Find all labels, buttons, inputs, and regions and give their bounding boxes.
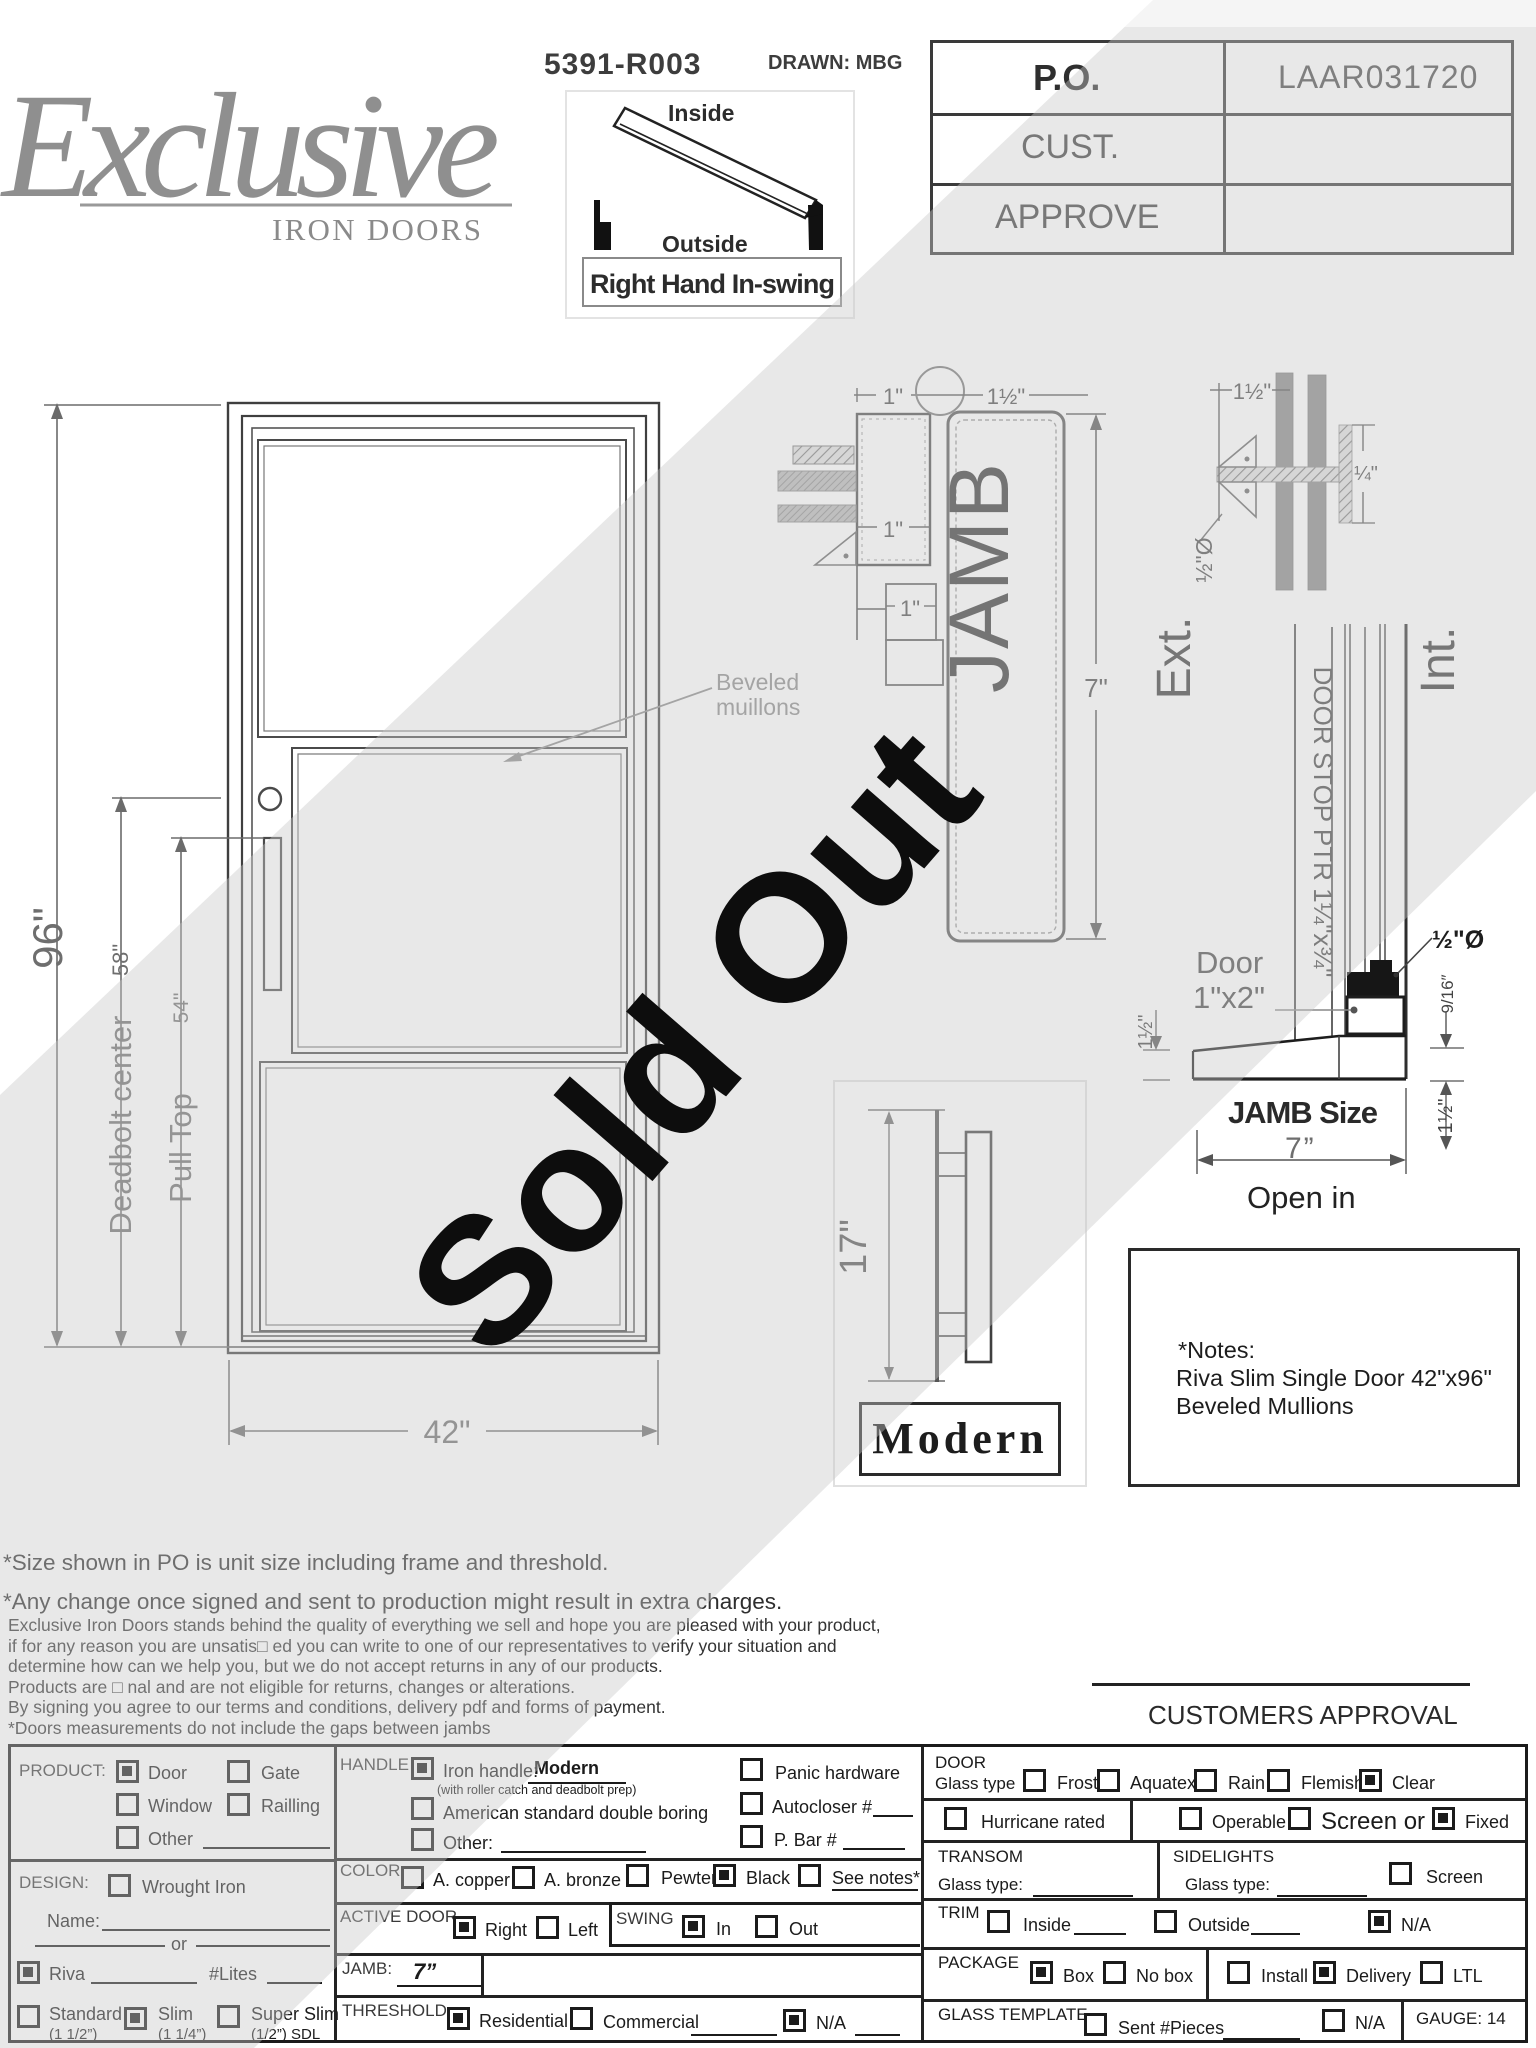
svg-text:IRON DOORS: IRON DOORS: [272, 212, 484, 247]
svg-text:1½": 1½": [1233, 379, 1271, 404]
svg-text:17": 17": [833, 1219, 875, 1275]
svg-text:1½": 1½": [1135, 1015, 1157, 1050]
svg-text:DOOR STOP PTR 1¼"x¾": DOOR STOP PTR 1¼"x¾": [1308, 667, 1338, 978]
svg-text:1"x2": 1"x2": [1193, 980, 1265, 1015]
svg-text:1½": 1½": [987, 384, 1025, 409]
svg-text:Deadbolt center: Deadbolt center: [103, 1016, 138, 1235]
svg-text:1½": 1½": [1435, 1099, 1457, 1134]
svg-text:Beveled: Beveled: [716, 669, 799, 695]
svg-text:½"Ø: ½"Ø: [1432, 926, 1484, 954]
svg-text:Door: Door: [1196, 945, 1263, 980]
svg-text:Right Hand In-swing: Right Hand In-swing: [590, 269, 835, 299]
svg-text:JAMB Size: JAMB Size: [1228, 1095, 1378, 1130]
svg-text:1": 1": [883, 384, 903, 409]
svg-text:muillons: muillons: [716, 694, 800, 720]
svg-text:9/16″: 9/16″: [1438, 974, 1457, 1013]
svg-text:54": 54": [170, 993, 193, 1024]
svg-text:Inside: Inside: [668, 100, 734, 126]
svg-text:Pull Top: Pull Top: [163, 1093, 198, 1203]
svg-text:96": 96": [24, 907, 71, 969]
svg-text:58": 58": [108, 944, 133, 976]
svg-text:Int.: Int.: [1412, 627, 1465, 694]
svg-text:Open in: Open in: [1247, 1180, 1356, 1215]
svg-text:1": 1": [900, 596, 920, 621]
svg-text:1": 1": [883, 517, 903, 542]
svg-text:Outside: Outside: [662, 231, 748, 257]
svg-text:¼": ¼": [1354, 463, 1378, 485]
